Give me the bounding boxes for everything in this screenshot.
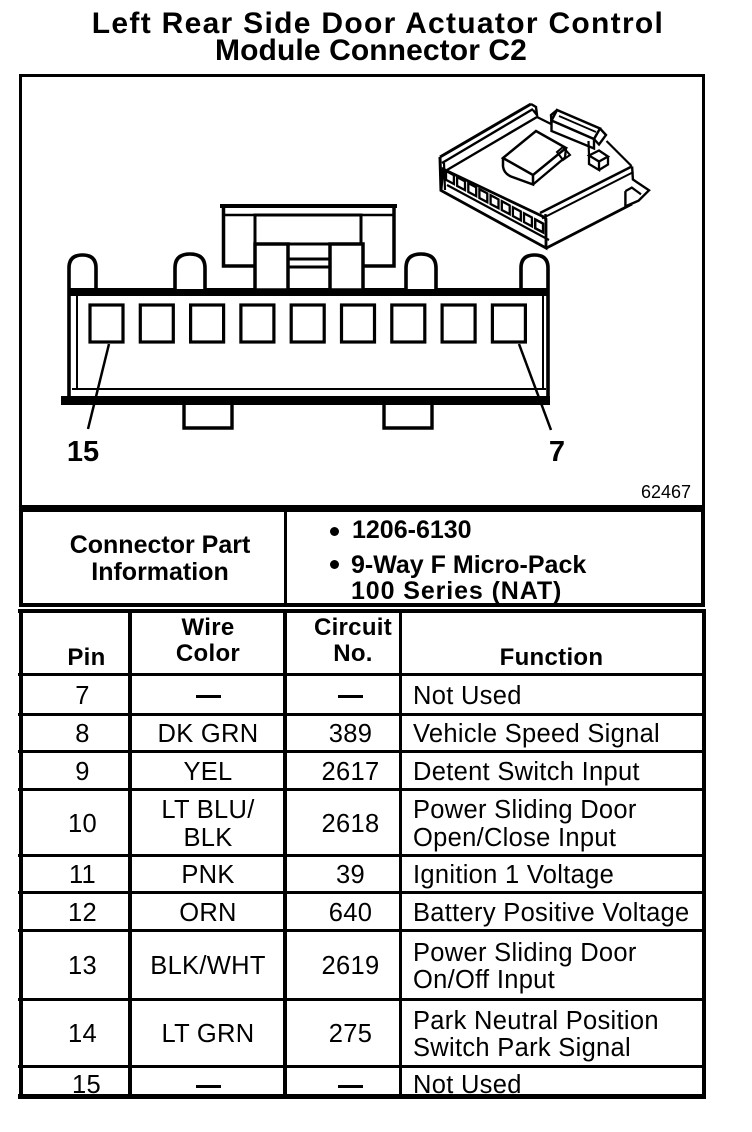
svg-text:15: 15 — [67, 436, 99, 468]
svg-text:62467: 62467 — [641, 482, 691, 502]
svg-text:7: 7 — [549, 436, 565, 468]
